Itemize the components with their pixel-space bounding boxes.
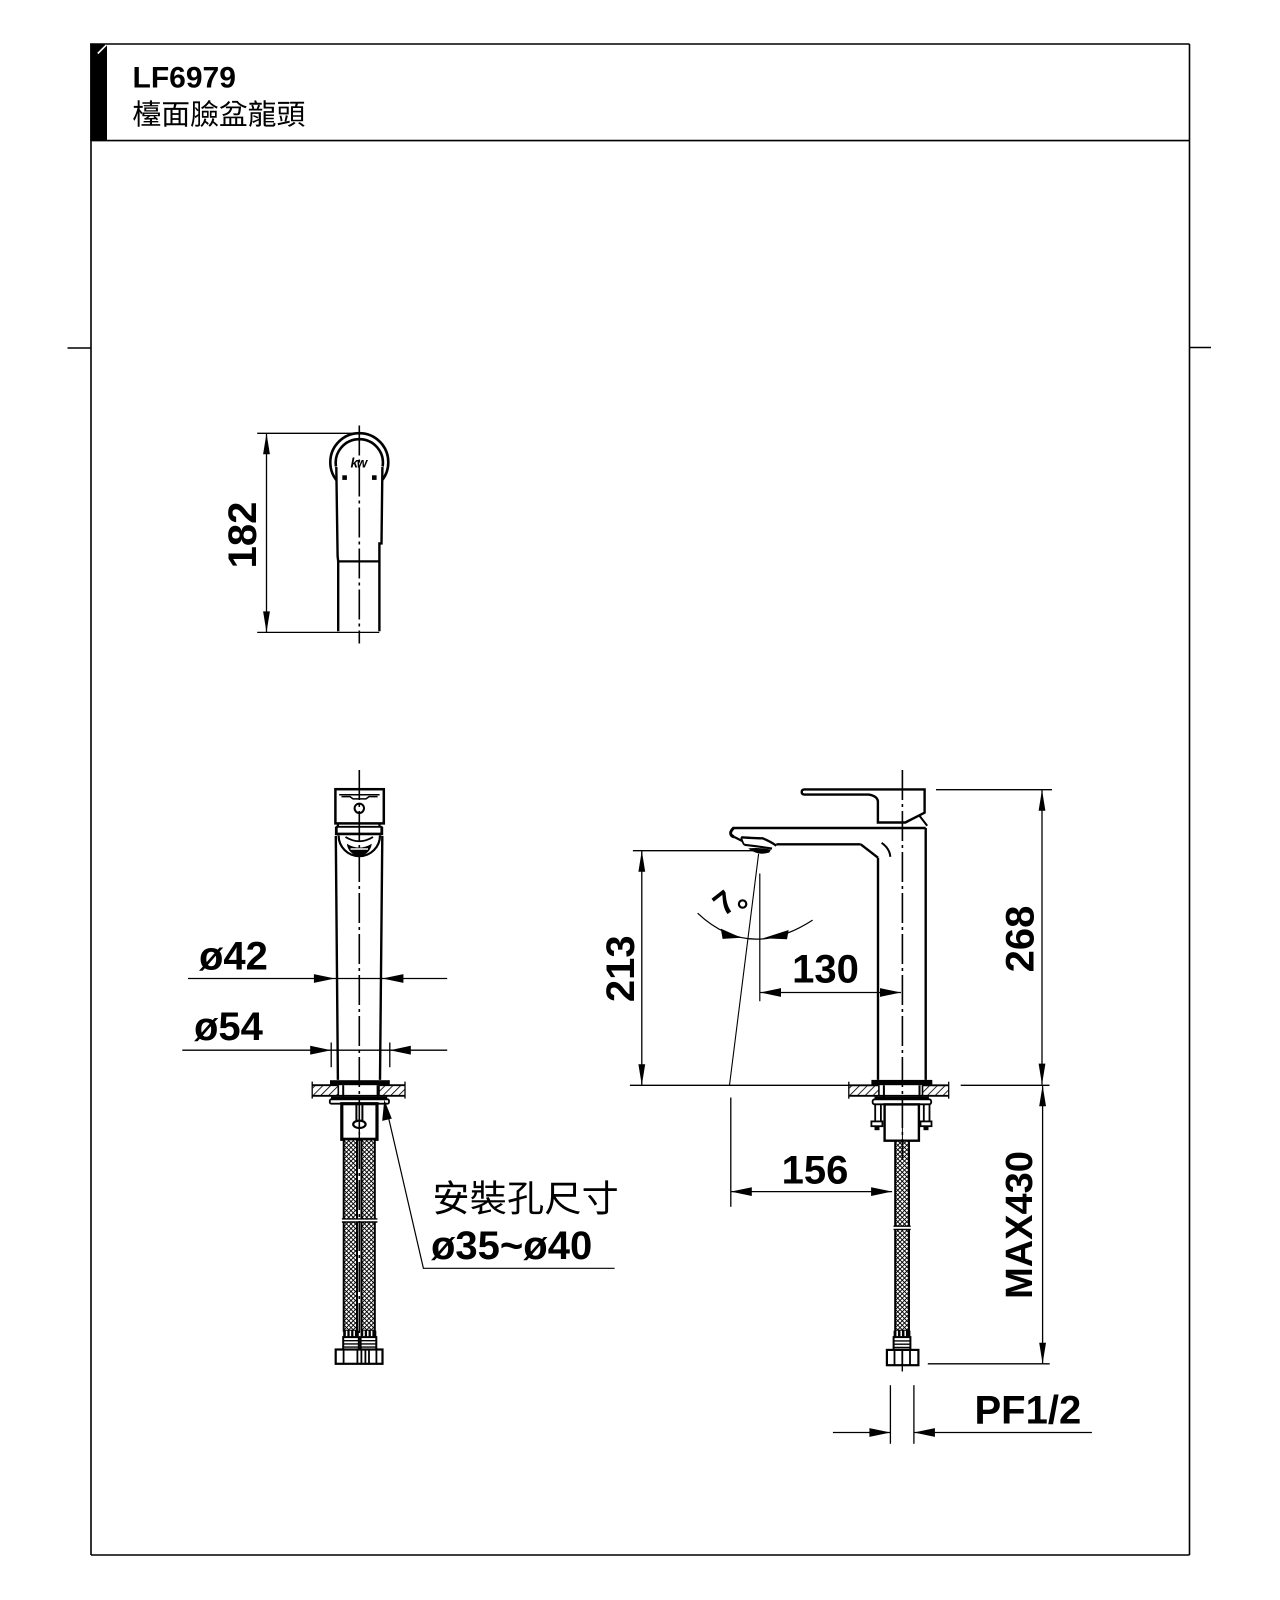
svg-text:213: 213 [599,935,643,1002]
svg-text:268: 268 [999,906,1043,973]
svg-text:182: 182 [221,502,265,569]
svg-text:ø54: ø54 [194,1005,264,1049]
svg-text:156: 156 [782,1149,849,1193]
svg-text:130: 130 [792,948,859,992]
svg-text:7: 7 [706,883,742,922]
svg-text:PF1/2: PF1/2 [975,1389,1082,1433]
svg-text:LF6979: LF6979 [133,62,236,95]
svg-text:ø35~ø40: ø35~ø40 [431,1224,592,1268]
svg-text:ø42: ø42 [199,935,268,979]
svg-text:MAX430: MAX430 [999,1151,1041,1299]
